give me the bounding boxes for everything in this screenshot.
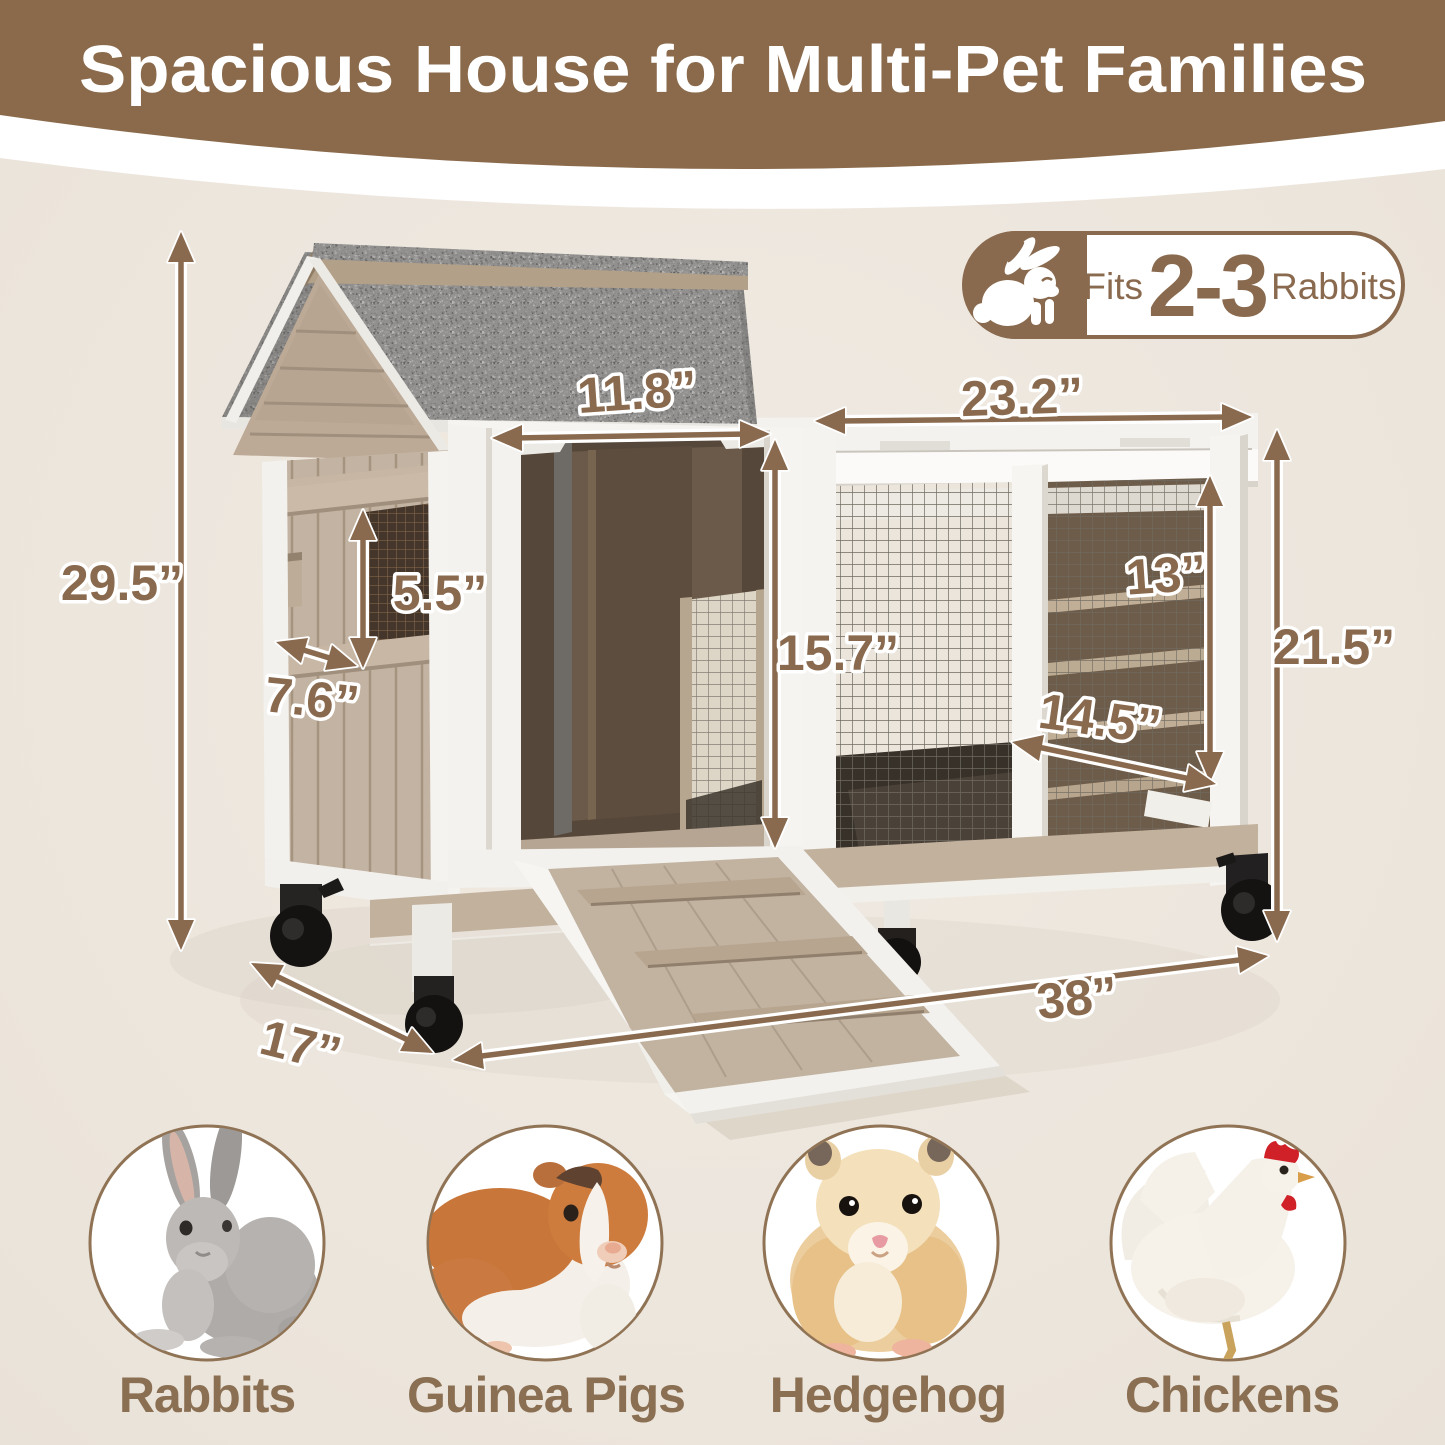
svg-text:15.7”: 15.7” xyxy=(777,625,899,681)
svg-text:Fits: Fits xyxy=(1083,266,1143,307)
svg-text:21.5”: 21.5” xyxy=(1273,619,1395,675)
svg-text:Rabbits: Rabbits xyxy=(1271,266,1396,307)
svg-text:23.2”: 23.2” xyxy=(960,367,1084,427)
svg-text:2-3: 2-3 xyxy=(1148,236,1266,335)
svg-text:Spacious House for Multi-Pet F: Spacious House for Multi-Pet Families xyxy=(79,32,1367,107)
svg-text:5.5”: 5.5” xyxy=(393,565,488,621)
svg-text:Rabbits: Rabbits xyxy=(119,1367,295,1423)
svg-text:Chickens: Chickens xyxy=(1125,1367,1339,1423)
svg-text:38”: 38” xyxy=(1034,966,1120,1030)
svg-text:11.8”: 11.8” xyxy=(575,360,698,424)
svg-text:7.6”: 7.6” xyxy=(262,666,362,732)
svg-text:29.5”: 29.5” xyxy=(61,555,183,611)
svg-text:Guinea Pigs: Guinea Pigs xyxy=(407,1367,685,1423)
svg-text:Hedgehog: Hedgehog xyxy=(770,1367,1006,1423)
svg-text:13”: 13” xyxy=(1124,544,1208,605)
